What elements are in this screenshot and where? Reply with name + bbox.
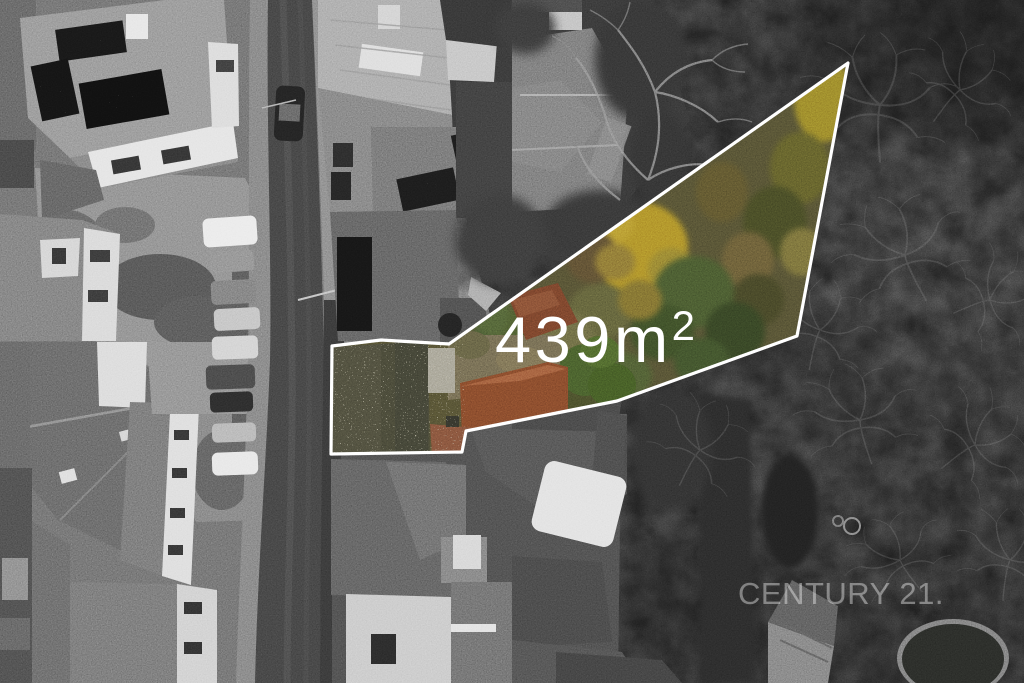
svg-text:439m2: 439m2 bbox=[495, 302, 698, 376]
svg-text:CENTURY 21.: CENTURY 21. bbox=[738, 576, 944, 611]
